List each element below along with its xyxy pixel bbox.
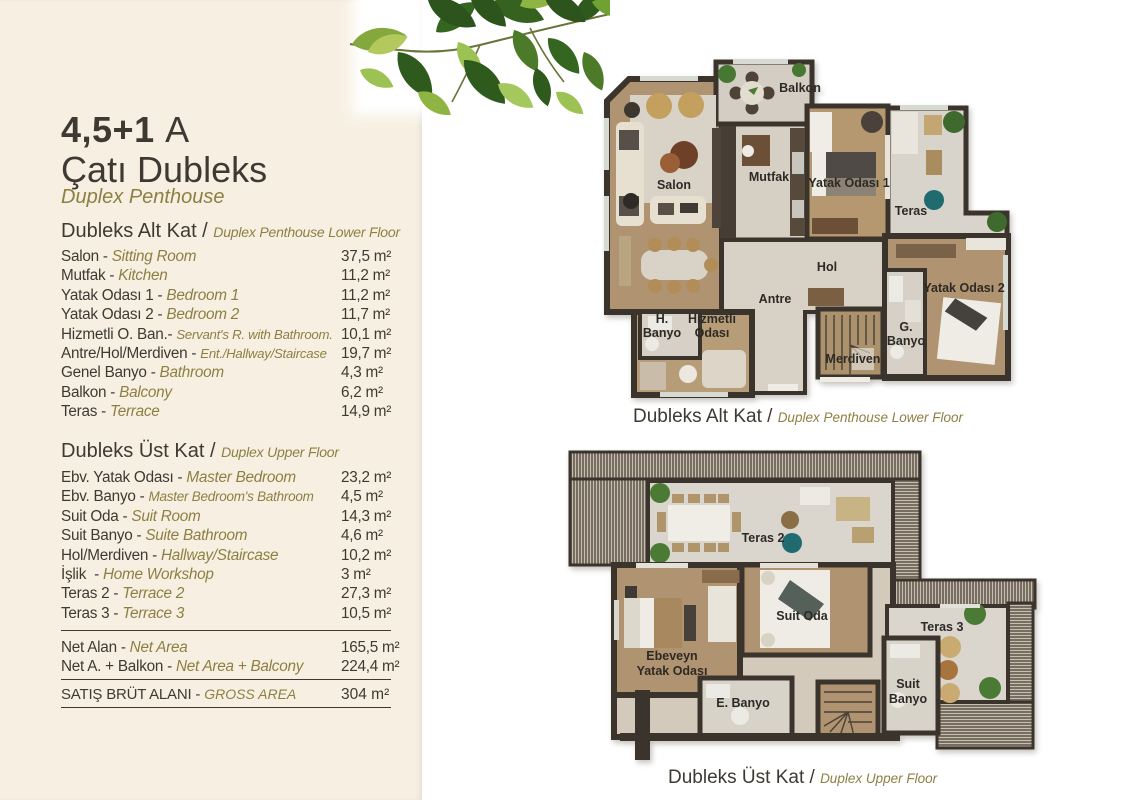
- svg-text:Mutfak: Mutfak: [749, 170, 789, 184]
- svg-text:Banyo: Banyo: [889, 692, 928, 706]
- svg-text:Banyo: Banyo: [887, 334, 926, 348]
- svg-text:Hol: Hol: [817, 260, 837, 274]
- svg-text:Suit Oda: Suit Oda: [776, 609, 828, 623]
- svg-text:Teras: Teras: [895, 204, 927, 218]
- svg-text:Salon: Salon: [657, 178, 691, 192]
- svg-text:Yatak Odası: Yatak Odası: [637, 664, 708, 678]
- svg-text:Yatak Odası 1: Yatak Odası 1: [808, 176, 889, 190]
- svg-text:Ebeveyn: Ebeveyn: [646, 649, 697, 663]
- svg-text:Balkon: Balkon: [779, 81, 821, 95]
- svg-text:Antre: Antre: [759, 292, 792, 306]
- svg-text:Merdiven: Merdiven: [826, 352, 881, 366]
- svg-text:Suit: Suit: [896, 677, 920, 691]
- svg-text:H.: H.: [656, 312, 669, 326]
- svg-text:Banyo: Banyo: [643, 326, 682, 340]
- svg-text:Hizmetli: Hizmetli: [688, 312, 736, 326]
- svg-text:Teras 2: Teras 2: [742, 531, 785, 545]
- svg-text:E. Banyo: E. Banyo: [716, 696, 770, 710]
- svg-text:Odası: Odası: [695, 326, 730, 340]
- svg-text:Yatak Odası 2: Yatak Odası 2: [923, 281, 1004, 295]
- svg-text:Teras 3: Teras 3: [921, 620, 964, 634]
- svg-text:G.: G.: [899, 320, 912, 334]
